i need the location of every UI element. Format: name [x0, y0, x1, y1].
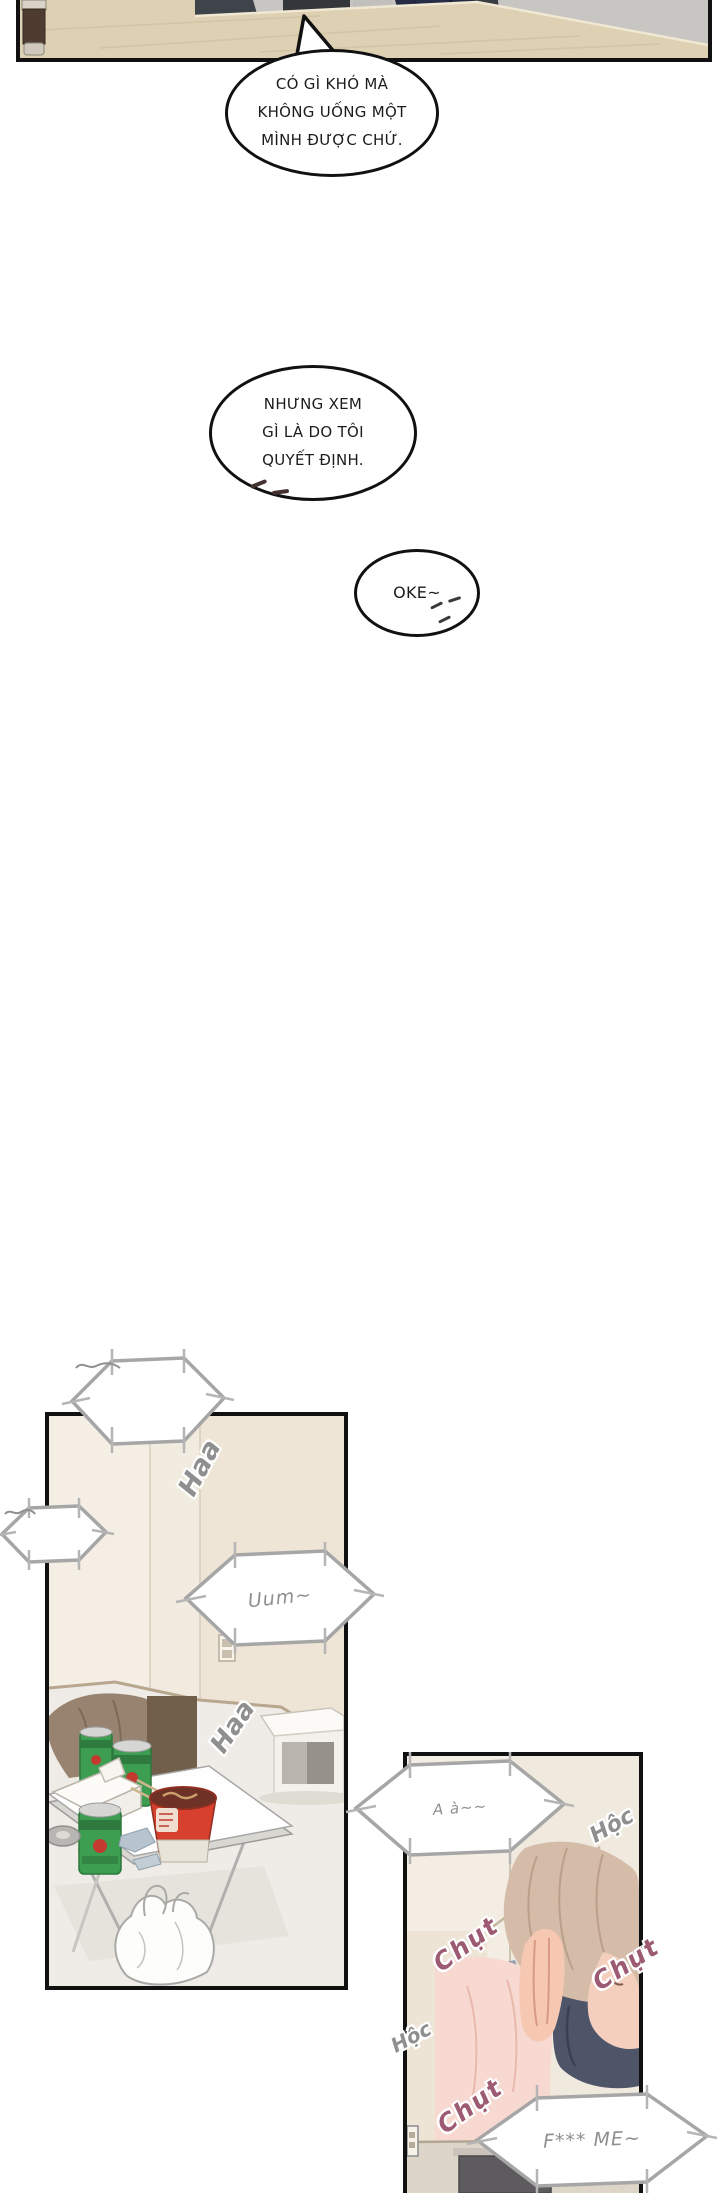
tape-roll [49, 1826, 80, 1846]
webtoon-page: CÓ GÌ KHÓ MÀ KHÔNG UỐNG MỘT MÌNH ĐƯỢC CH… [0, 0, 720, 2193]
speech-line: OKE~ [393, 578, 441, 608]
speech-bubble: CÓ GÌ KHÓ MÀ KHÔNG UỐNG MỘT MÌNH ĐƯỢC CH… [225, 49, 439, 177]
speech-line: QUYẾT ĐỊNH. [262, 447, 364, 475]
speech-bubble: OKE~ [354, 549, 480, 637]
dark-door-strip [147, 1696, 197, 1780]
speech-line: CÓ GÌ KHÓ MÀ [276, 71, 388, 99]
thought-bubble-hex [2, 1506, 106, 1562]
thought-bubble-hex: A à~~ [356, 1761, 564, 1855]
thought-bubble-hex: F*** ME~ [477, 2094, 707, 2186]
thought-text: Uum~ [182, 1541, 379, 1654]
speech-line: MÌNH ĐƯỢC CHỨ. [261, 127, 403, 155]
room-scene [49, 1416, 344, 1986]
wall-switch [407, 2126, 418, 2156]
coffee-cup [22, 0, 46, 55]
thought-bubble-hex [72, 1358, 224, 1444]
speech-line: KHÔNG UỐNG MỘT [257, 99, 406, 127]
beer-can [79, 1803, 121, 1874]
squiggle-mark [72, 1358, 224, 1444]
thought-text: F*** ME~ [475, 2090, 708, 2190]
speech-line: GÌ LÀ DO TÔI [262, 419, 364, 447]
speech-bubble: NHƯNG XEM GÌ LÀ DO TÔI QUYẾT ĐỊNH. [209, 365, 417, 501]
squiggle-mark [2, 1506, 106, 1562]
speech-line: NHƯNG XEM [264, 391, 362, 419]
thought-bubble-hex: Uum~ [186, 1551, 374, 1645]
office-desk-scene [20, 0, 708, 58]
thought-text: A à~~ [353, 1754, 567, 1862]
ramen-cup [150, 1787, 216, 1862]
